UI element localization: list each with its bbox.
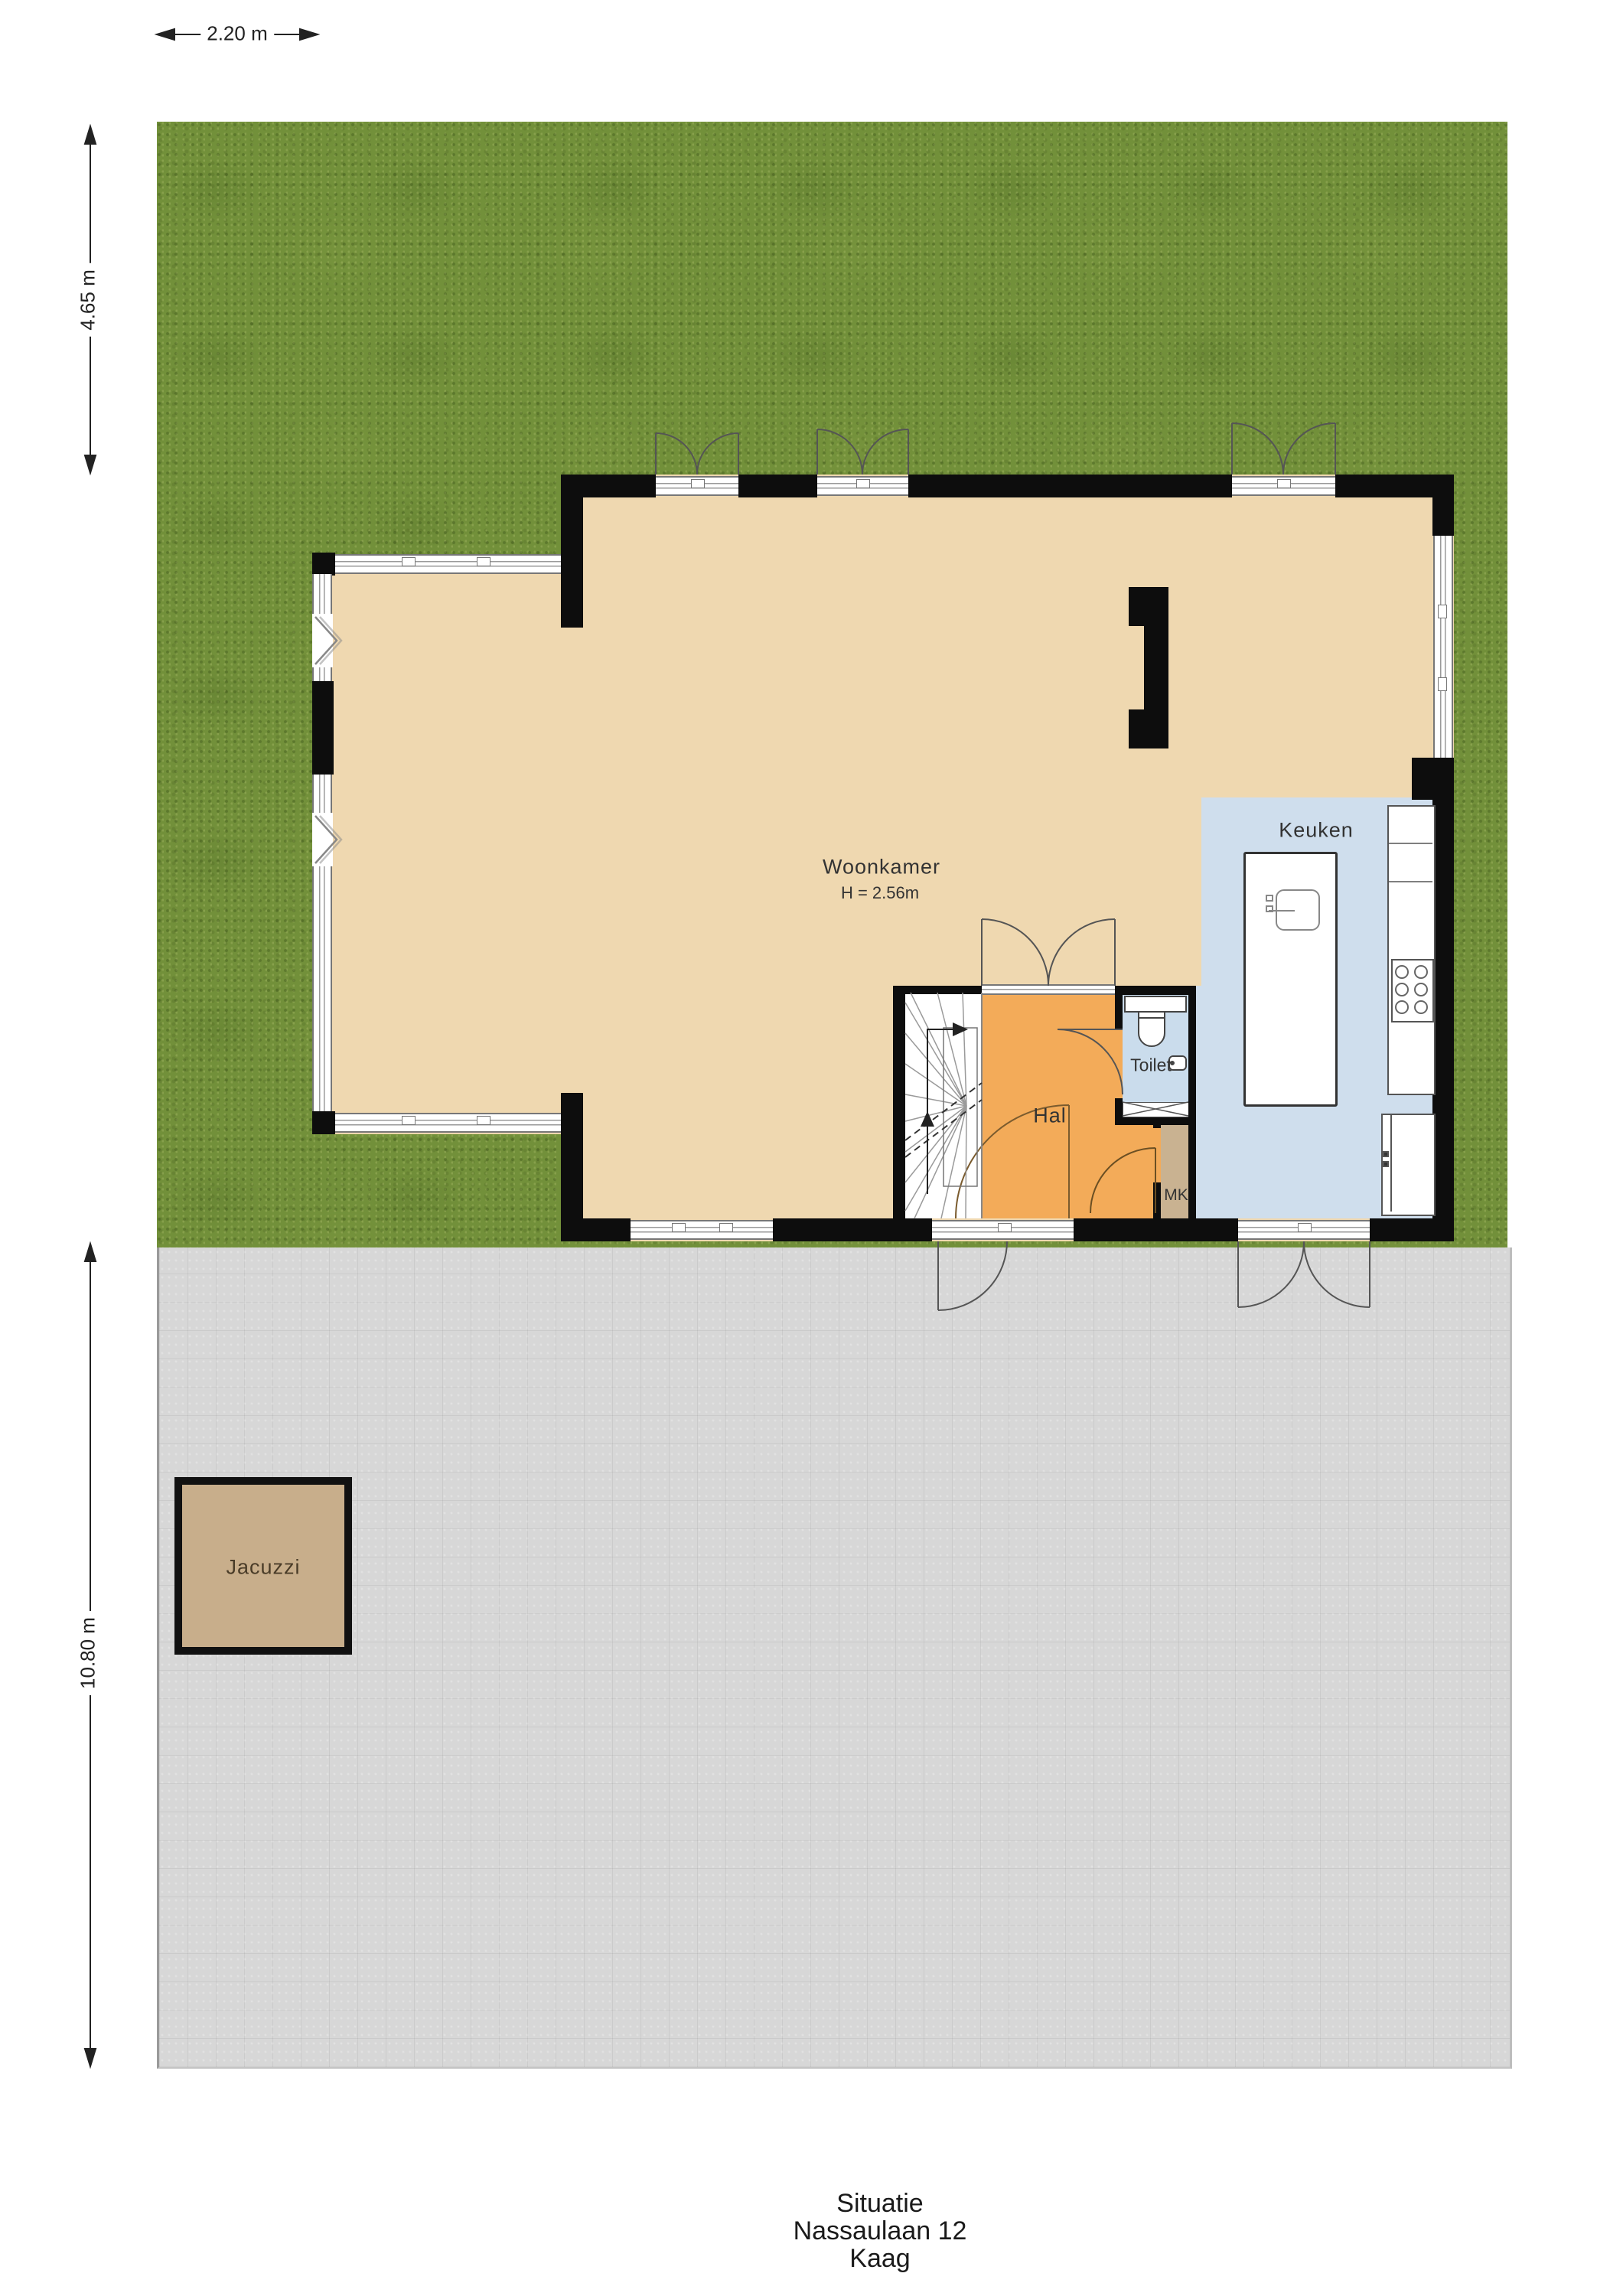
bay-corner-bottom [312, 1111, 335, 1134]
bottom-window-band [631, 1220, 773, 1240]
wall-top-1 [561, 475, 656, 497]
room-label-jacuzzi: Jacuzzi [226, 1556, 300, 1580]
mullion-tick [719, 1223, 733, 1232]
mullion-tick [1438, 605, 1447, 618]
kitchen-counter [1387, 805, 1436, 1095]
wall-keuken-divider [1188, 986, 1196, 1218]
dimension-label-terrace: 10.80 m [77, 1611, 100, 1695]
mullion-tick [477, 557, 490, 566]
mullion-tick [691, 479, 705, 488]
room-label-hal: Hal [1033, 1104, 1067, 1128]
bay-corner-top [312, 553, 335, 576]
mullion-tick [1298, 1223, 1312, 1232]
wall-bottom-2 [773, 1218, 932, 1241]
wall-bottom-3 [1074, 1218, 1238, 1241]
room-label-keuken: Keuken [1279, 819, 1354, 843]
mk-wall-left-post [1153, 1119, 1161, 1128]
wall-top-2 [738, 475, 817, 497]
bay-bottom-window-band [335, 1113, 561, 1133]
bay-left-window-1 [312, 574, 332, 614]
stair-wall-top [893, 986, 982, 994]
wall-bottom-1 [561, 1218, 631, 1241]
room-label-woonkamer: Woonkamer [823, 856, 940, 879]
bay-left-window-3 [312, 775, 332, 813]
mullion-tick [856, 479, 870, 488]
toilet-floor [1123, 995, 1188, 1102]
mk-wall-left [1153, 1182, 1161, 1218]
chimney-column [1144, 587, 1168, 748]
mullion-tick [998, 1223, 1012, 1232]
terrace-paving [157, 1247, 1512, 2069]
kitchen-island [1243, 852, 1338, 1107]
wall-pillar-kitchen [1412, 758, 1435, 800]
toilet-cabinet [1123, 1102, 1190, 1117]
mullion-tick [1438, 677, 1447, 691]
bay-floor [312, 555, 561, 1134]
wall-right-lower [1432, 758, 1454, 1241]
bay-left-chevron-bg-2 [312, 813, 333, 866]
mullion-tick [1277, 479, 1291, 488]
floorplan-canvas: 2.20 m 4.65 m 10.80 m Woonkamer H = 2.56… [0, 0, 1623, 2296]
bay-left-chevron-bg-1 [312, 614, 333, 667]
toilet-wall-top [1115, 986, 1196, 995]
bay-left-window-2 [312, 667, 332, 681]
stove [1391, 959, 1434, 1022]
room-height-woonkamer: H = 2.56m [841, 883, 919, 903]
mullion-tick [402, 1116, 416, 1125]
chimney-flange-top [1129, 587, 1144, 626]
title-line-1: Situatie [836, 2189, 923, 2219]
wall-bottom-4 [1370, 1218, 1454, 1241]
hal-doorway-band [982, 984, 1115, 995]
room-label-toilet: Toilet [1130, 1055, 1172, 1076]
wall-right-upper [1432, 475, 1454, 536]
dimension-label-top: 2.20 m [200, 22, 274, 46]
stairwell-floor [905, 993, 982, 1218]
toilet-wall-left-a [1115, 995, 1123, 1029]
bay-left-window-4 [312, 866, 332, 1111]
wall-left-lower-arm [561, 1093, 583, 1218]
mullion-tick [672, 1223, 686, 1232]
wall-top-3 [908, 475, 1232, 497]
title-line-3: Kaag [849, 2244, 910, 2274]
kitchen-appliance [1381, 1114, 1436, 1216]
bay-left-wall-solid [312, 681, 334, 775]
mullion-tick [477, 1116, 490, 1125]
dimension-label-garden: 4.65 m [77, 263, 100, 337]
title-line-2: Nassaulaan 12 [794, 2216, 967, 2246]
right-window-band [1433, 536, 1453, 758]
stair-wall-left [893, 986, 905, 1218]
room-label-mk: MK [1164, 1186, 1188, 1205]
chimney-flange-bottom [1129, 709, 1144, 748]
bay-top-window-band [335, 554, 561, 574]
wall-left-upper-arm [561, 497, 583, 628]
mullion-tick [402, 557, 416, 566]
